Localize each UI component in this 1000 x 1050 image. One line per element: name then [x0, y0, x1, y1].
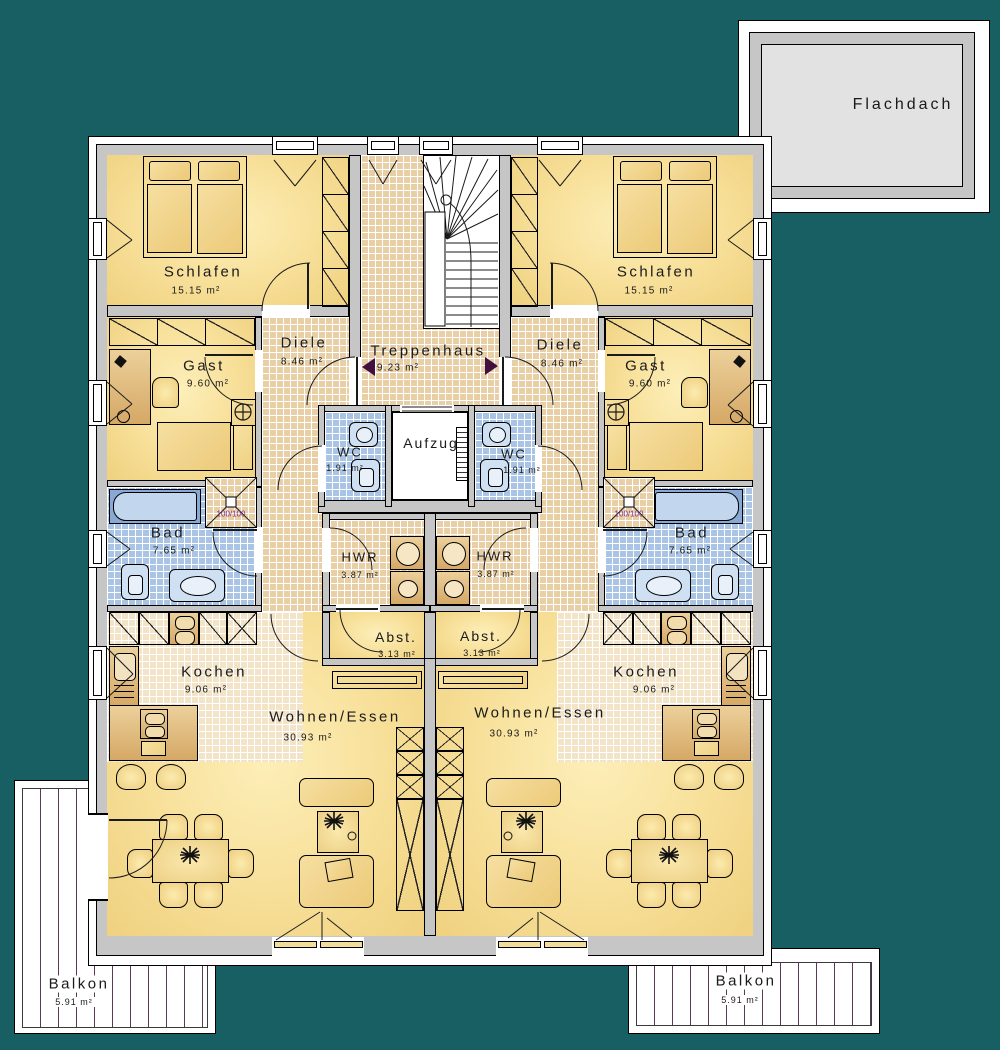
room-label-schlafen-left: Schlafen	[164, 264, 242, 281]
area-label-gast-right: 9.60 m²	[629, 379, 671, 390]
area-label-diele-left: 8.46 m²	[281, 357, 323, 368]
room-label-aufzug: Aufzug	[403, 435, 459, 451]
balcony-label-right: Balkon	[714, 973, 779, 990]
area-label-wohnen-right: 30.93 m²	[489, 729, 538, 740]
room-label-wc-left: WC	[337, 445, 363, 460]
room-label-abst-left: Abst.	[375, 629, 417, 645]
room-label-hwr-right: HWR	[476, 549, 513, 564]
room-label-bad-left: Bad	[151, 525, 185, 542]
area-label-kochen-right: 9.06 m²	[633, 685, 675, 696]
room-label-wc-right: WC	[501, 447, 527, 462]
balcony-name-left: Balkon	[47, 976, 112, 993]
balcony-area-right: 5.91 m²	[719, 995, 761, 1005]
balcony-label-left: Balkon	[47, 976, 112, 993]
area-label-diele-right: 8.46 m²	[541, 359, 583, 370]
folding-door-lines	[276, 912, 584, 940]
area-label-abst-right: 3.13 m²	[463, 648, 501, 658]
room-label-kochen-right: Kochen	[613, 664, 679, 681]
area-label-wc-right: 1.91 m²	[503, 465, 541, 475]
shower-size-label-right: 100/100	[615, 510, 644, 519]
area-label-gast-left: 9.60 m²	[187, 379, 229, 390]
balcony-area-text-left: 5.91 m²	[53, 997, 95, 1007]
room-label-hwr-left: HWR	[341, 550, 378, 565]
room-label-diele-left: Diele	[281, 335, 328, 352]
shower-x-lines	[206, 478, 654, 527]
room-label-bad-right: Bad	[675, 525, 709, 542]
shower-size-label-left: 100/100	[217, 510, 246, 519]
balcony-area-left: 5.91 m²	[53, 997, 95, 1007]
room-label-kochen-left: Kochen	[181, 664, 247, 681]
flachdach-label: Flachdach	[853, 96, 954, 114]
area-label-kochen-left: 9.06 m²	[185, 685, 227, 696]
area-label-wc-left: 1.91 m²	[326, 463, 364, 473]
area-label-hwr-left: 3.87 m²	[341, 570, 379, 580]
room-label-gast-right: Gast	[625, 358, 667, 375]
area-label-hwr-right: 3.87 m²	[477, 569, 515, 579]
balcony-name-right: Balkon	[714, 973, 779, 990]
area-label-wohnen-left: 30.93 m²	[283, 733, 332, 744]
room-label-schlafen-right: Schlafen	[617, 264, 695, 281]
balcony-area-text-right: 5.91 m²	[719, 995, 761, 1005]
stair-walk-line	[450, 203, 471, 327]
area-label-treppenhaus: 9.23 m²	[377, 363, 419, 374]
room-label-treppenhaus: Treppenhaus	[370, 343, 485, 360]
area-label-schlafen-right: 15.15 m²	[624, 286, 673, 297]
floor-plan: Flachdach Schlafen 15.15 m² Schlafen 15.…	[0, 0, 1000, 1050]
room-label-wohnen-right: Wohnen/Essen	[474, 705, 605, 722]
plant-icons	[180, 812, 679, 864]
room-label-diele-right: Diele	[537, 337, 584, 354]
area-label-bad-left: 7.65 m²	[153, 546, 195, 557]
room-label-wohnen-left: Wohnen/Essen	[269, 709, 400, 726]
room-label-abst-right: Abst.	[460, 628, 502, 644]
area-label-abst-left: 3.13 m²	[378, 649, 416, 659]
area-label-bad-right: 7.65 m²	[669, 546, 711, 557]
floor-drain-icons	[235, 404, 624, 420]
elevator-door-lines	[402, 407, 452, 411]
room-label-gast-left: Gast	[183, 358, 225, 375]
area-label-schlafen-left: 15.15 m²	[171, 286, 220, 297]
